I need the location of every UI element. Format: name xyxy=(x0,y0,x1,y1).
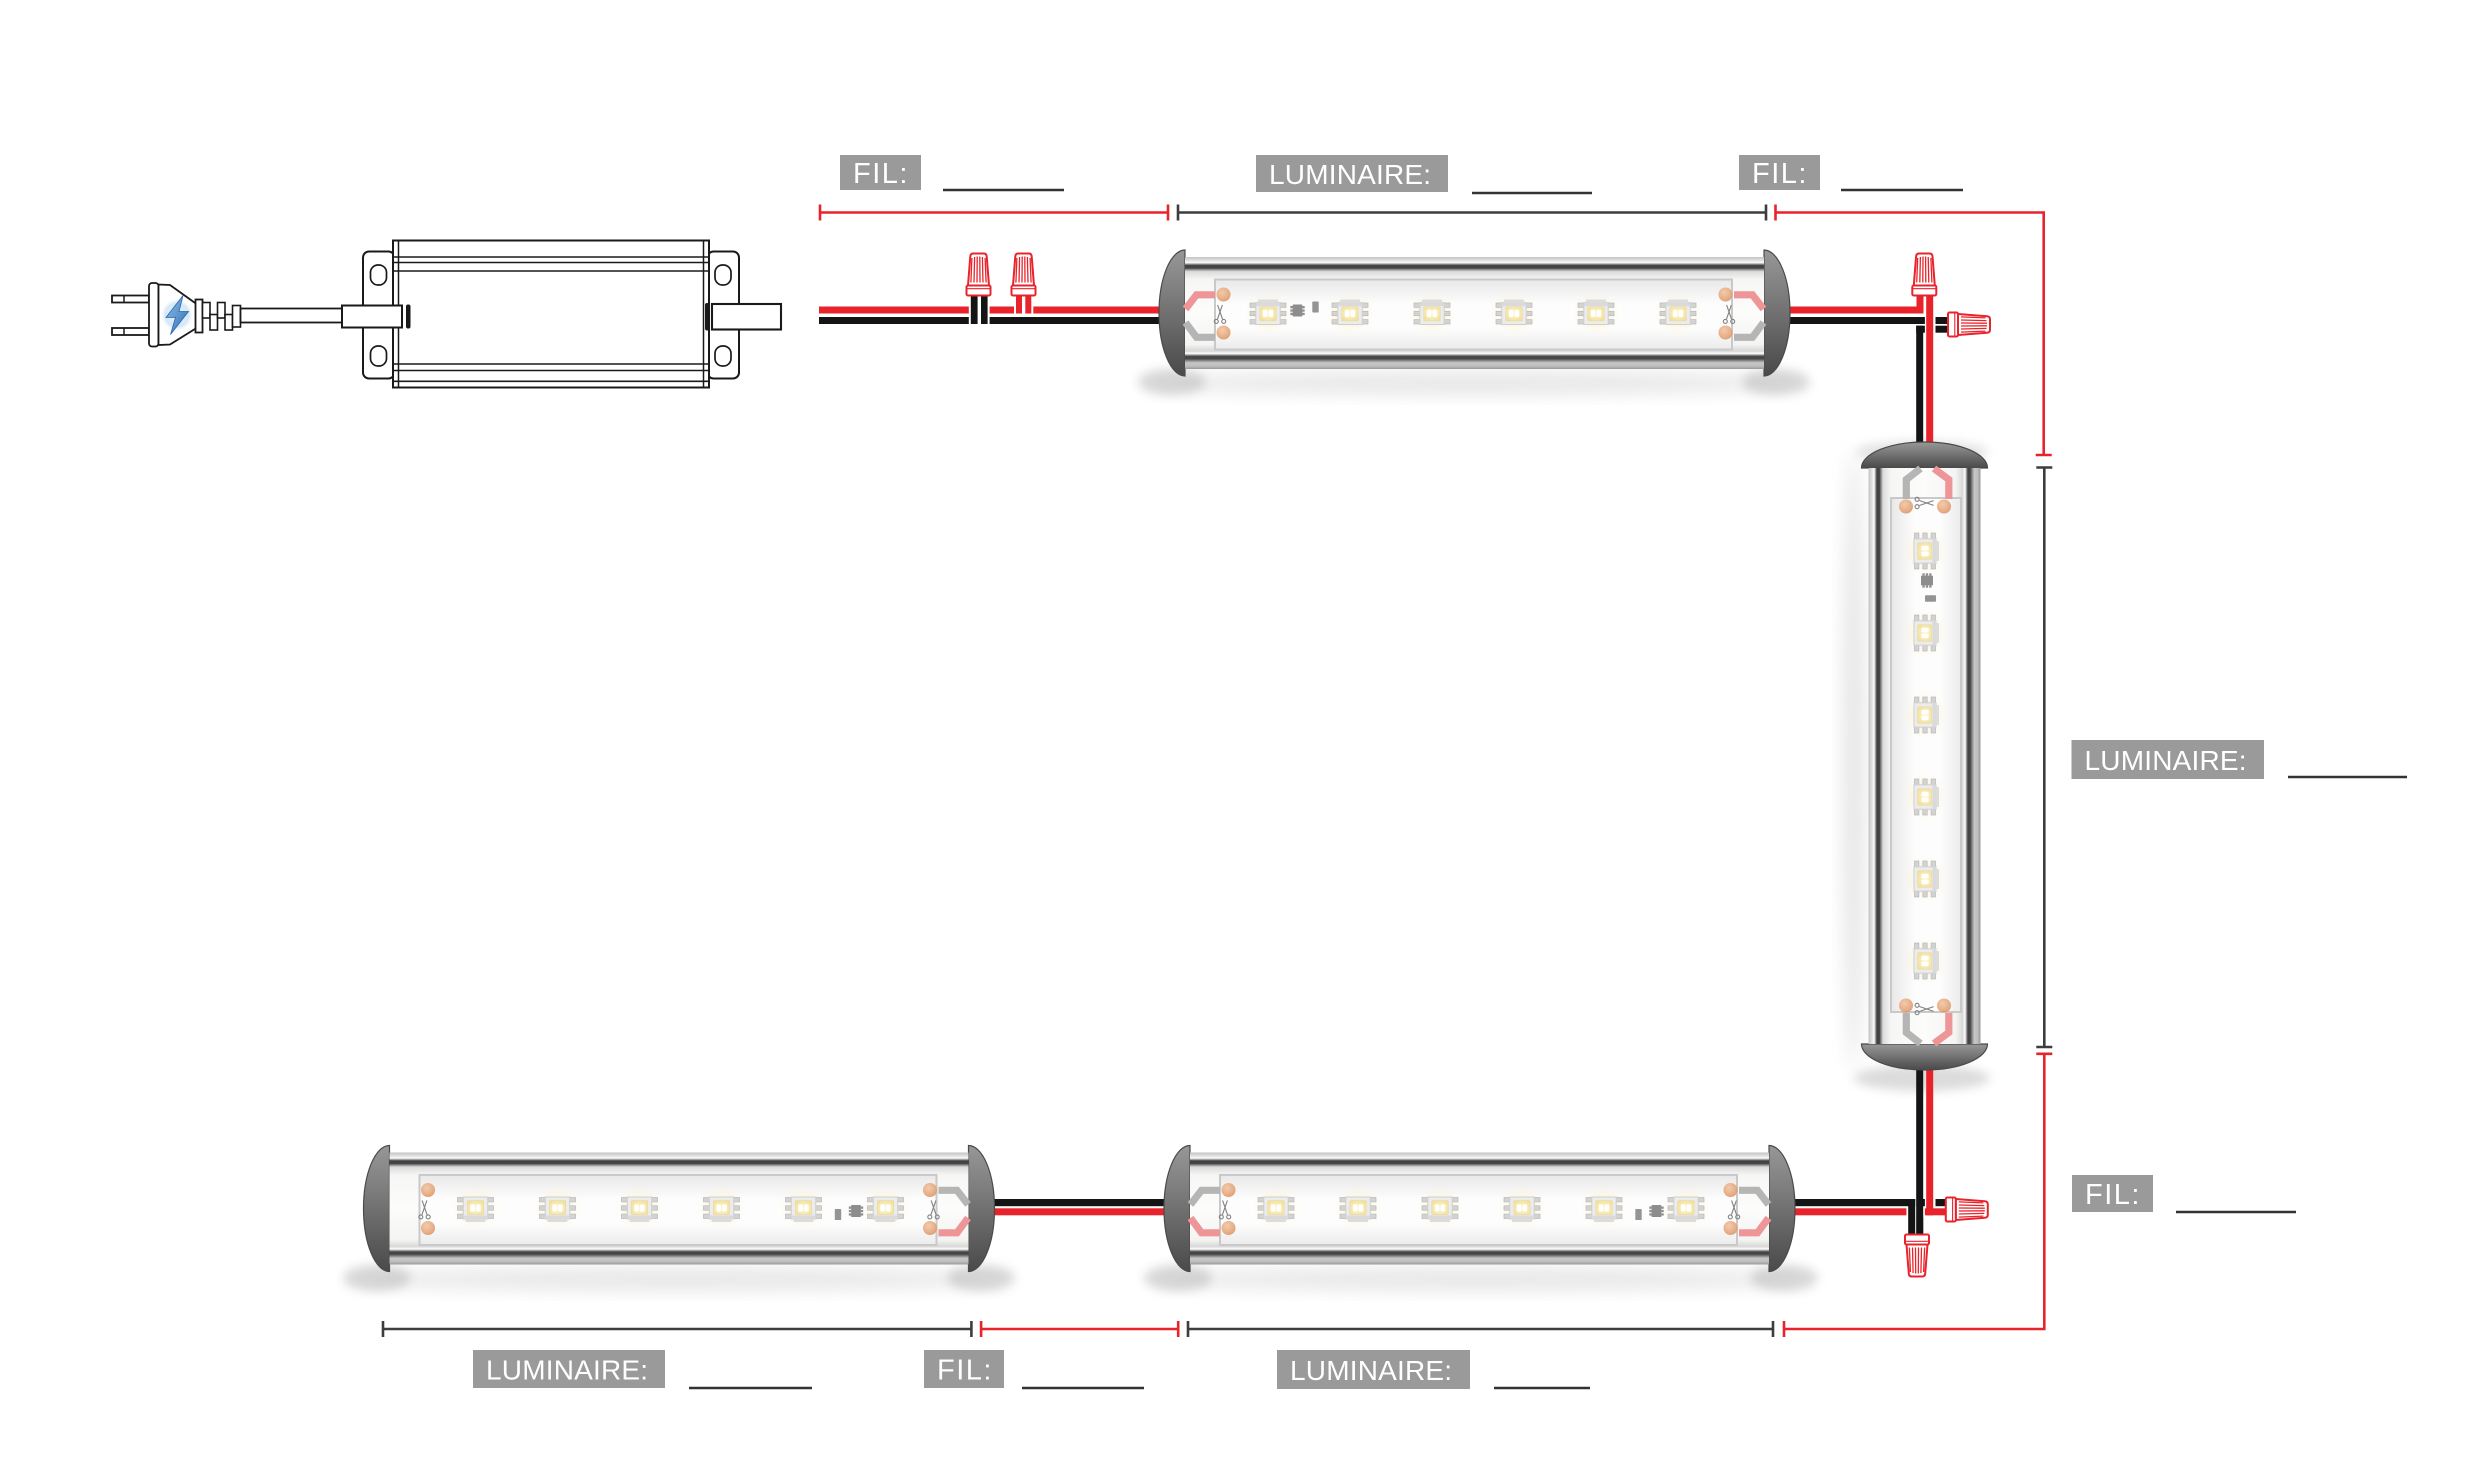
svg-text:LUMINAIRE:: LUMINAIRE: xyxy=(486,1355,648,1386)
svg-text:FIL:: FIL: xyxy=(1752,158,1808,190)
svg-text:FIL:: FIL: xyxy=(2085,1179,2141,1211)
svg-text:FIL:: FIL: xyxy=(853,158,909,190)
svg-text:LUMINAIRE:: LUMINAIRE: xyxy=(1290,1355,1452,1386)
svg-text:LUMINAIRE:: LUMINAIRE: xyxy=(2085,745,2247,776)
svg-text:LUMINAIRE:: LUMINAIRE: xyxy=(1269,159,1431,190)
svg-text:FIL:: FIL: xyxy=(937,1355,993,1387)
